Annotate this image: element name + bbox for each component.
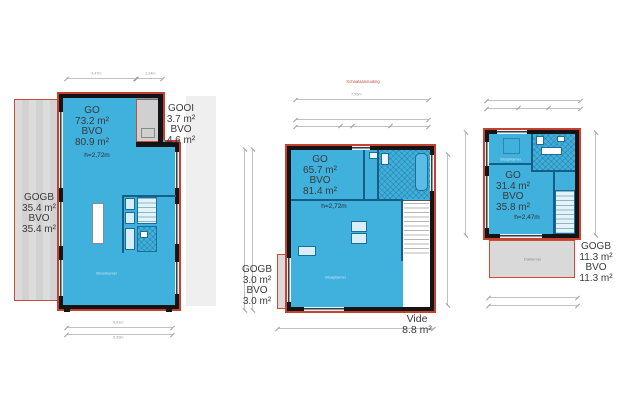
interior-wall [553, 172, 555, 234]
dimension-line-vertical [595, 133, 596, 235]
dimension-line [489, 297, 577, 298]
window [352, 146, 370, 150]
dimension-line [487, 100, 580, 101]
dimension-line-vertical [465, 133, 466, 235]
installation-fixture [141, 128, 155, 138]
interior-wall [122, 195, 124, 253]
dimension-line [489, 305, 577, 306]
area-code: GO [66, 106, 118, 117]
area-code: GOGB [572, 242, 620, 253]
vide-label: Vide 8.8 m² [393, 314, 441, 336]
wall-stub [166, 308, 172, 312]
area-code: GOGB [16, 193, 62, 204]
plan3-gogb-label: GOGB 11.3 m² BVO 11.3 m² [572, 242, 620, 284]
bvo-value: 11.3 m² [572, 274, 620, 285]
washbasin [381, 153, 389, 165]
interior-wall [291, 199, 403, 201]
plan3-go-label: GO 31.4 m² BVO 35.8 m² [486, 171, 540, 213]
dimension-value: 7,95m [351, 93, 361, 97]
closet [125, 212, 135, 224]
bvo-code: BVO [66, 127, 118, 138]
dimension-line [296, 99, 428, 100]
dimension-value: 4,47m [91, 72, 101, 76]
room-name: Woonkamer [96, 272, 117, 276]
bvo-code: BVO [294, 176, 346, 187]
staircase-treads [404, 203, 429, 257]
bvo-value: 4.6 m² [158, 136, 204, 147]
dimension-value: 1,34m [145, 72, 155, 76]
dimension-line [67, 78, 135, 79]
interior-wall [377, 150, 379, 199]
closet [125, 228, 135, 250]
window [430, 155, 434, 191]
washbasin [557, 136, 565, 142]
closet [125, 198, 135, 210]
bvo-value: 3.0 m² [234, 297, 280, 308]
plan1-ceiling-height: h=2,72m [71, 152, 123, 159]
interior-wall [489, 163, 533, 165]
floorplan-sheet: Schaalaanduiding Woonkamer GO 73.2 m² BV… [0, 0, 620, 414]
window [175, 262, 179, 294]
scale-note: Schaalaanduiding [343, 80, 382, 84]
interior-wall [363, 150, 365, 199]
bvo-value: 80.9 m² [66, 138, 118, 149]
dimension-line [67, 327, 172, 328]
bvo-code: BVO [16, 214, 62, 225]
toilet [536, 136, 544, 145]
plan2-ceiling-height: h=2,72m [308, 203, 360, 210]
window [175, 152, 179, 188]
plan1-gogb-label: GOGB 35.4 m² BVO 35.4 m² [16, 193, 62, 235]
dimension-line [296, 119, 428, 120]
bvo-value: 35.4 m² [16, 225, 62, 236]
bathroom [137, 226, 157, 252]
toilet [140, 231, 148, 238]
bvo-code: BVO [572, 263, 620, 274]
dimension-line [296, 126, 428, 127]
staircase [137, 197, 157, 224]
dimension-line-vertical [447, 155, 448, 305]
area-code: GO [294, 155, 346, 166]
bvo-value: 35.8 m² [486, 203, 540, 214]
window [287, 258, 291, 302]
window [175, 204, 179, 244]
dimension-line [487, 108, 580, 109]
dresser [298, 246, 316, 256]
interior-wall [531, 134, 533, 172]
window [59, 260, 63, 296]
window [497, 130, 527, 134]
bathtub [415, 153, 428, 191]
kitchen-island [92, 203, 104, 244]
window [304, 307, 344, 311]
dimension-value: 5,99m [113, 336, 123, 340]
dimension-value: 5,81m [113, 321, 123, 325]
area-code: GOGB [234, 265, 280, 276]
plan2-go-label: GO 65.7 m² BVO 81.4 m² [294, 155, 346, 197]
plan2-gogb-label: GOGB 3.0 m² BVO 3.0 m² [234, 265, 280, 307]
closet [351, 221, 367, 232]
plan3-ceiling-height: h=2,47m [501, 214, 553, 221]
bvo-value: 81.4 m² [294, 187, 346, 198]
dimension-line [67, 334, 172, 335]
window [485, 142, 489, 166]
wall-stub [64, 308, 70, 312]
bvo-code: BVO [158, 125, 204, 136]
area-value: 8.8 m² [393, 325, 441, 336]
closet [351, 233, 367, 244]
area-code: GO [486, 171, 540, 182]
plan3-gogb-terrace: Dakterras [489, 240, 575, 278]
skylight [503, 138, 520, 154]
plan1-go-label: GO 73.2 m² BVO 80.9 m² [66, 106, 118, 148]
bvo-code: BVO [486, 192, 540, 203]
area-code: GOOI [158, 104, 204, 115]
staircase [555, 190, 575, 234]
terrace-name: Dakterras [524, 258, 541, 262]
interior-wall [401, 201, 403, 261]
room-name: Slaapkamer [325, 276, 346, 280]
washstand [541, 147, 562, 155]
dimension-line [137, 78, 162, 79]
plan1-gooi-label: GOOI 3.7 m² BVO 4.6 m² [158, 104, 204, 146]
window [59, 112, 63, 188]
bvo-code: BVO [234, 286, 280, 297]
window [500, 234, 542, 238]
landing-edge [403, 200, 430, 201]
room-name: Slaapkamer [500, 158, 521, 162]
